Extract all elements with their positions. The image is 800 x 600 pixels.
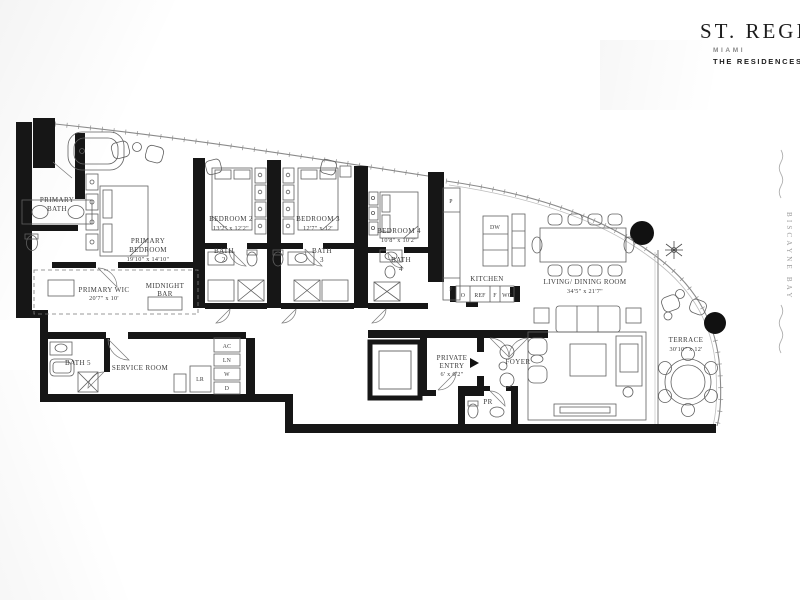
coffee-table-icon [570, 344, 606, 376]
label-dim: 12'7" x 12' [303, 225, 333, 232]
label-refrigerator: REF [474, 293, 486, 299]
room-label-private-entry: PRIVATE ENTRY 6' x 6'2" [437, 354, 468, 378]
utility-closets [190, 338, 240, 394]
label-text: BATH [391, 256, 411, 264]
wall-divider-3 [354, 166, 368, 308]
room-label-primary-bath: PRIMARY BATH [40, 196, 74, 213]
wall-bottom-main [285, 424, 716, 433]
label-text: BEDROOM 2 [209, 215, 253, 223]
sink-icon-2 [68, 206, 84, 219]
wall-corridor-c [368, 303, 428, 309]
label-wine-cooler: WC [502, 293, 512, 299]
label-text: BEDROOM [129, 246, 167, 254]
wall-divider-1 [193, 158, 205, 308]
terrace-chair [682, 404, 695, 417]
label-text: PRIMARY WIC [79, 286, 130, 294]
wall-entry-top [368, 330, 548, 338]
door-primary-bath [53, 162, 72, 178]
elevator-shaft [370, 342, 420, 398]
label-text: TERRACE [669, 336, 704, 344]
wall-primary-bath-lower [20, 225, 78, 231]
dining-chair [548, 265, 562, 276]
armchair-icon [110, 140, 131, 160]
room-label-primary-bedroom: PRIMARY BEDROOM 19'10" x 14'10" [127, 237, 170, 263]
wall-service-east [246, 338, 255, 396]
kitchen-island [483, 216, 508, 266]
label-pantry-upper: P [449, 199, 452, 205]
label-text: ENTRY [440, 362, 465, 370]
label-oven: O [461, 293, 465, 299]
label-dim: 19'10" x 14'10" [127, 256, 170, 263]
media-console [554, 404, 616, 416]
label-pantry-lower: P [449, 287, 452, 293]
terrace-table-icon [665, 359, 711, 405]
bath5-fixtures [50, 342, 98, 392]
room-label-bedroom-4: BEDROOM 4 10'8" x 10'2" [377, 227, 421, 244]
terrace-furniture [659, 290, 718, 417]
wic-island [48, 280, 74, 296]
dining-chair [568, 214, 582, 225]
wall-left-main [16, 122, 32, 318]
sink-icon [32, 206, 48, 219]
armchair-icon-2 [144, 144, 165, 164]
door-bedroom4 [372, 309, 386, 323]
elevator-car [379, 351, 411, 389]
label-text: BAR [157, 290, 173, 298]
label-dim: 20'7" x 10' [89, 295, 119, 302]
wall-left-cap [16, 310, 48, 318]
dining-chair [568, 265, 582, 276]
label-dim: 10'8" x 10'2" [381, 237, 417, 244]
wall-entry-right-a [477, 336, 484, 352]
label-text: 4 [399, 265, 403, 273]
label-text: BATH [312, 247, 332, 255]
label-dim: 30'10" x 12' [669, 346, 702, 353]
label-linen: LN [223, 358, 232, 364]
brand-city: MIAMI [713, 47, 745, 54]
wall-primary-bath-divider [75, 133, 85, 199]
toilet-icon [247, 252, 257, 266]
room-label-pr: PR [483, 398, 492, 406]
label-dim: 13'2" x 12'2" [213, 225, 249, 232]
wall-kitchen-stub [466, 302, 478, 307]
living-furniture [528, 306, 646, 420]
wall-step-connector [285, 402, 293, 426]
door-primary-suite [98, 268, 117, 287]
label-lr: LR [196, 377, 204, 383]
label-text: PRIVATE [437, 354, 468, 362]
label-text: BATH [214, 247, 234, 255]
bath3-fixtures [273, 250, 348, 301]
label-text: 2 [222, 256, 226, 264]
label-text: PRIMARY [131, 237, 165, 245]
label-ac: AC [223, 344, 231, 350]
wall-bath2-top-b [247, 243, 267, 249]
label-freezer: F [493, 293, 497, 299]
dining-chair [548, 214, 562, 225]
bay-label: BISCAYNE BAY [785, 212, 793, 301]
bay-water-edge [779, 150, 783, 353]
label-text: MIDNIGHT [146, 282, 185, 290]
room-label-kitchen: KITCHEN [470, 275, 504, 283]
wall-pr-right [511, 386, 518, 424]
label-dim: 34'5" x 21'7" [567, 288, 603, 295]
label-washer: W [224, 372, 230, 378]
room-label-foyer: FOYER [506, 358, 531, 366]
buffet-cabinet [512, 214, 525, 266]
label-dishwasher: DW [490, 225, 500, 231]
wall-bath3-top-a [281, 243, 303, 249]
water-wave-top [779, 150, 783, 198]
room-label-bath-4: BATH 4 [391, 256, 411, 273]
label-text: BEDROOM 3 [296, 215, 340, 223]
service-cabinet [174, 374, 186, 392]
wall-entry-bottom-b [458, 390, 484, 396]
toilet-icon [385, 266, 395, 278]
brand-name: ST. REGIS [700, 19, 800, 43]
wall-corridor-a [205, 303, 267, 309]
foyer-furniture [499, 345, 514, 387]
room-label-service-room: SERVICE ROOM [112, 364, 169, 372]
wall-divider-4 [428, 172, 444, 282]
column-terrace [704, 312, 726, 334]
door-bedroom3 [282, 309, 296, 323]
door-bedroom2 [216, 309, 230, 323]
wall-service-top-west [48, 332, 106, 339]
dining-chair [588, 265, 602, 276]
sofa-icon [556, 306, 620, 332]
label-dim: 6' x 6'2" [441, 371, 464, 378]
floor-plan-canvas: ST. REGIS MIAMI THE RESIDENCES BISCAYNE … [0, 0, 800, 600]
label-text: BATH [47, 205, 67, 213]
bath2-fixtures [208, 250, 264, 301]
room-label-bath-5: BATH 5 [65, 359, 91, 367]
dining-table-icon [540, 228, 626, 262]
label-text: 3 [320, 256, 324, 264]
plant-icon [665, 241, 683, 259]
wall-bath4-top-b [404, 247, 428, 253]
dining-furniture [512, 214, 634, 276]
label-text: BEDROOM 4 [377, 227, 421, 235]
wall-bath5-divider [104, 338, 110, 372]
door-service [108, 339, 129, 360]
kitchen-fixtures [443, 188, 514, 302]
brand-subtitle: THE RESIDENCES [713, 57, 800, 66]
entry-arrow-icon [470, 358, 479, 368]
door-foyer-left [490, 338, 509, 357]
label-text: PRIMARY [40, 196, 74, 204]
wall-primary-wic-top-a [52, 262, 96, 268]
label-text: LIVING/ DINING ROOM [543, 278, 626, 286]
water-wave-bottom [779, 305, 783, 353]
wall-top-left-corner [33, 118, 55, 168]
elevator [370, 342, 420, 398]
room-label-bedroom-3: BEDROOM 3 12'7" x 12' [296, 215, 340, 232]
wall-divider-2 [267, 160, 281, 308]
room-label-terrace: TERRACE 30'10" x 12' [669, 336, 704, 353]
page: { "brand": { "name": "ST. REGIS", "city"… [0, 0, 800, 600]
brand-block: ST. REGIS MIAMI THE RESIDENCES [700, 19, 800, 66]
room-label-midnight-bar: MIDNIGHT BAR [146, 282, 185, 298]
dining-chair [608, 214, 622, 225]
wall-corridor-b [281, 303, 354, 309]
midnight-bar-counter [148, 297, 182, 310]
room-label-primary-wic: PRIMARY WIC 20'7" x 10' [79, 286, 130, 302]
wall-left-lower [40, 318, 48, 402]
room-label-bath-3: BATH 3 [312, 247, 332, 264]
label-dryer: D [225, 386, 229, 392]
sink-icon [490, 407, 504, 417]
armchair-icon [528, 338, 547, 355]
armchair-icon [204, 158, 222, 175]
room-label-living-dining: LIVING/ DINING ROOM 34'5" x 21'7" [543, 278, 626, 295]
lounge-chair-icon [660, 293, 681, 313]
dining-chair [608, 265, 622, 276]
armchair-icon-2 [528, 366, 547, 383]
room-label-bedroom-2: BEDROOM 2 13'2" x 12'2" [209, 215, 253, 232]
wall-service-bottom [40, 394, 293, 402]
